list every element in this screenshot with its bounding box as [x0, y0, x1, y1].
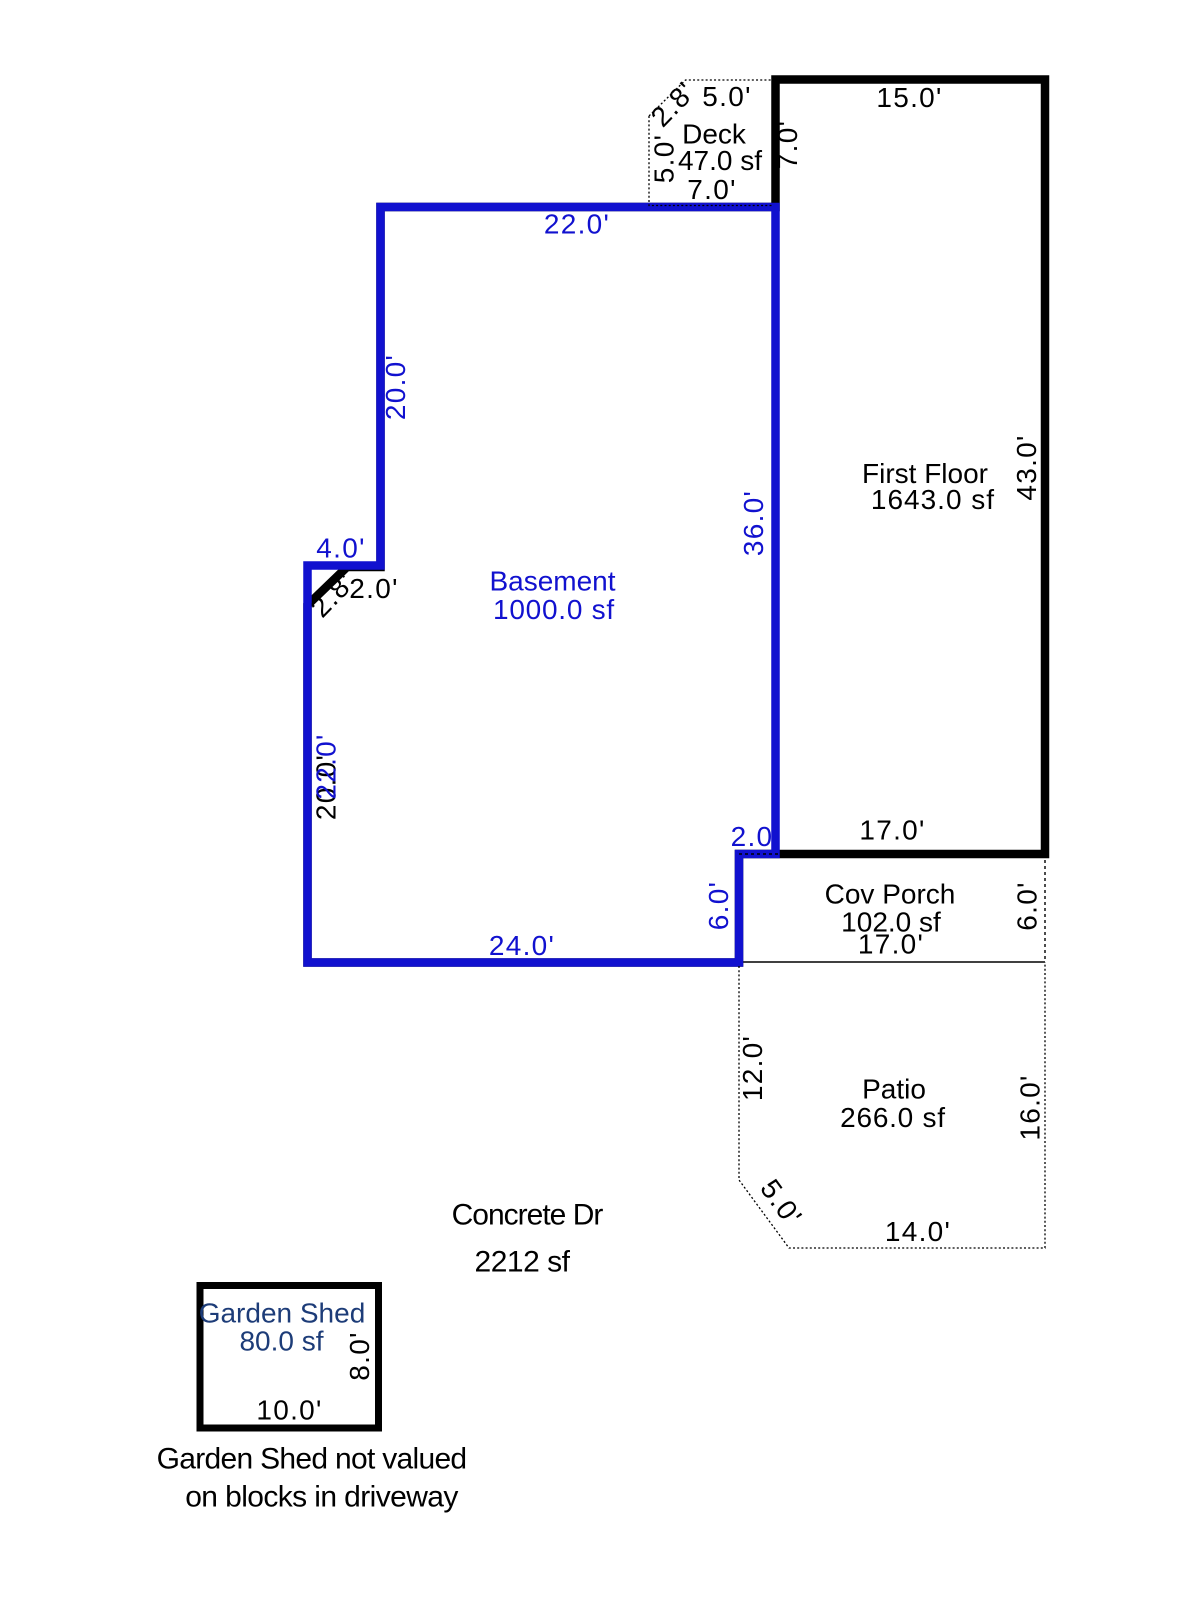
svg-text:Garden Shed not valued: Garden Shed not valued: [157, 1443, 467, 1476]
svg-text:22.0': 22.0': [544, 209, 610, 240]
svg-text:on blocks in driveway: on blocks in driveway: [185, 1481, 458, 1514]
svg-text:266.0 sf: 266.0 sf: [840, 1102, 946, 1133]
svg-text:22.0': 22.0': [311, 733, 342, 799]
svg-text:6.0': 6.0': [703, 881, 734, 930]
svg-text:6.0': 6.0': [1012, 881, 1043, 930]
svg-text:Cov Porch: Cov Porch: [825, 879, 956, 910]
svg-text:15.0': 15.0': [876, 82, 942, 113]
svg-text:2.0: 2.0: [731, 821, 774, 852]
svg-text:14.0': 14.0': [885, 1216, 951, 1247]
svg-text:5.0': 5.0': [649, 134, 680, 183]
svg-text:43.0': 43.0': [1011, 434, 1042, 500]
svg-text:7.0': 7.0': [772, 120, 803, 169]
svg-text:10.0': 10.0': [256, 1395, 322, 1426]
svg-text:24.0': 24.0': [489, 930, 555, 961]
svg-text:36.0': 36.0': [738, 490, 769, 556]
svg-text:12.0': 12.0': [737, 1035, 768, 1101]
svg-text:17.0': 17.0': [858, 929, 924, 960]
svg-text:20.0': 20.0': [380, 354, 411, 420]
svg-text:5.0': 5.0': [702, 81, 751, 112]
svg-text:Basement: Basement: [489, 566, 615, 597]
svg-text:1643.0 sf: 1643.0 sf: [871, 484, 995, 515]
svg-text:Garden Shed: Garden Shed: [199, 1298, 366, 1329]
svg-text:16.0': 16.0': [1015, 1074, 1046, 1140]
svg-text:2.0': 2.0': [349, 573, 398, 604]
svg-text:2212 sf: 2212 sf: [475, 1246, 571, 1279]
svg-text:Concrete Dr: Concrete Dr: [452, 1199, 604, 1232]
svg-text:8.0': 8.0': [344, 1331, 375, 1380]
svg-text:17.0': 17.0': [859, 815, 925, 846]
svg-text:4.0': 4.0': [316, 533, 365, 564]
svg-text:80.0 sf: 80.0 sf: [239, 1326, 323, 1357]
svg-text:Patio: Patio: [862, 1074, 926, 1105]
svg-text:7.0': 7.0': [687, 174, 736, 205]
svg-text:47.0 sf: 47.0 sf: [678, 145, 762, 176]
svg-text:1000.0 sf: 1000.0 sf: [493, 594, 615, 625]
